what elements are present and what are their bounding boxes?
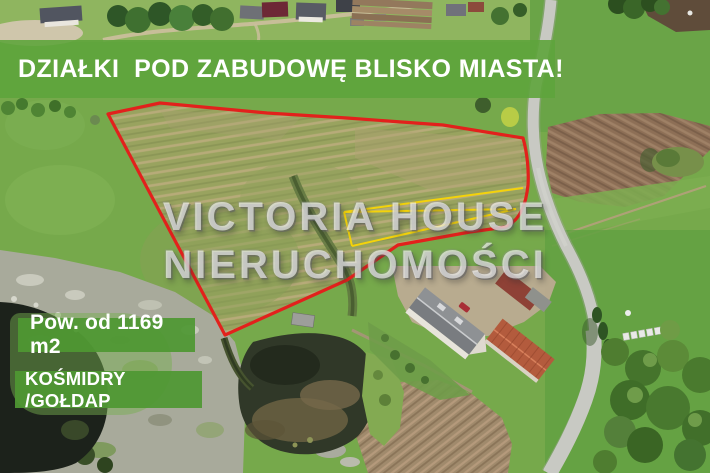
marsh-pond xyxy=(238,333,376,454)
real-estate-aerial-photo: DZIAŁKI POD ZABUDOWĘ BLISKO MIASTA! VICT… xyxy=(0,0,710,473)
yellow-green-tree xyxy=(501,107,519,127)
location-badge-text: KOŚMIDRY /GOŁDAP xyxy=(25,368,202,412)
headline-text: DZIAŁKI POD ZABUDOWĘ BLISKO MIASTA! xyxy=(18,55,564,84)
headline-banner: DZIAŁKI POD ZABUDOWĘ BLISKO MIASTA! xyxy=(0,40,555,98)
location-badge: KOŚMIDRY /GOŁDAP xyxy=(15,371,202,408)
area-badge-text: Pow. od 1169 m2 xyxy=(30,311,195,359)
area-badge: Pow. od 1169 m2 xyxy=(18,318,195,352)
village-house xyxy=(39,5,82,27)
